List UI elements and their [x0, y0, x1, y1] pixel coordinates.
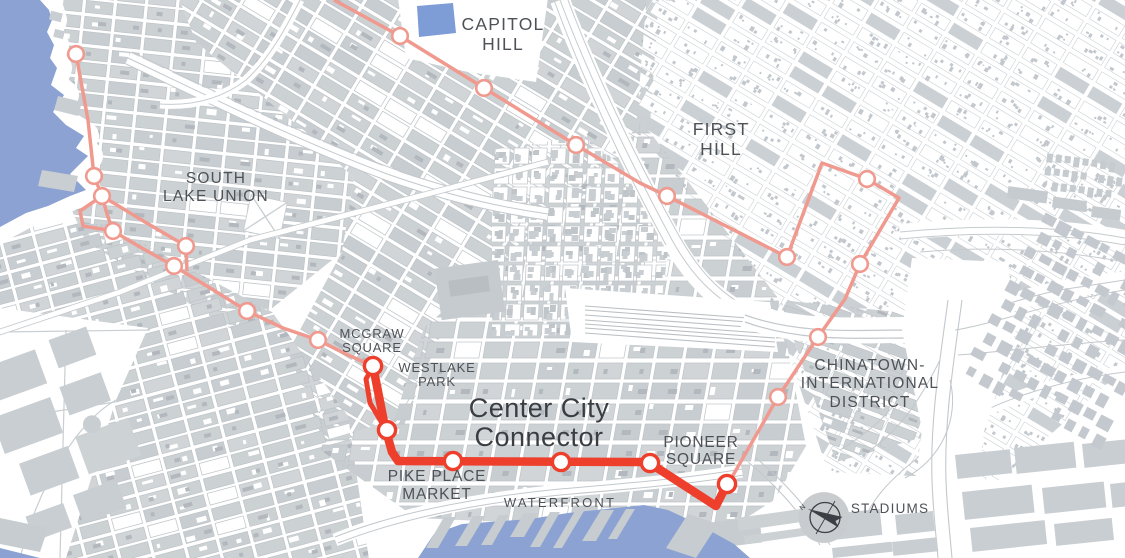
- svg-text:WATERFRONT: WATERFRONT: [504, 495, 616, 510]
- svg-text:PIKE PLACEMARKET: PIKE PLACEMARKET: [388, 468, 486, 503]
- svg-text:MCGRAWSQUARE: MCGRAWSQUARE: [340, 326, 405, 355]
- svg-text:STADIUMS: STADIUMS: [851, 501, 929, 516]
- svg-text:FIRSTHILL: FIRSTHILL: [693, 119, 750, 159]
- svg-text:PIONEERSQUARE: PIONEERSQUARE: [663, 434, 738, 468]
- svg-text:Center CityConnector: Center CityConnector: [469, 393, 610, 452]
